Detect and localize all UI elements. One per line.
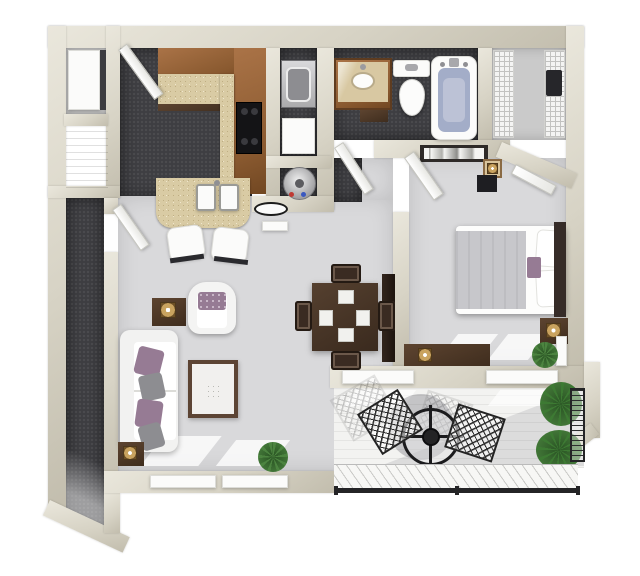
placemat [338, 290, 354, 304]
countertop-right [220, 74, 234, 192]
railing-post [334, 486, 338, 495]
bed-blanket [456, 231, 526, 309]
wall-plate [262, 221, 288, 231]
oval-wall-mirror [254, 202, 288, 216]
water-heater-cap [295, 179, 304, 188]
wall-hall-lower [104, 493, 120, 533]
dining-chair [295, 301, 312, 331]
cold-pipe-dot [301, 192, 306, 197]
wall-left [48, 26, 66, 512]
placemat [338, 328, 354, 342]
window [222, 475, 288, 488]
wall-entry-closet-right [106, 26, 120, 198]
dark-storage-box [477, 175, 497, 192]
armchair-pillow [198, 292, 226, 310]
range-burner [241, 108, 248, 115]
window [486, 370, 558, 384]
railing-post [576, 486, 580, 495]
hanging-clothes [546, 70, 562, 96]
sink-basin [219, 184, 239, 211]
range-burner [241, 138, 248, 145]
wall-right-bedroom [566, 26, 584, 370]
wall-living-bedroom [393, 212, 409, 366]
dresser-lamp [418, 348, 432, 362]
sofa-pillow-gray [138, 372, 167, 402]
dryer [282, 118, 315, 154]
toilet-button [405, 64, 418, 71]
range-burner [251, 138, 258, 145]
dining-chair [378, 301, 395, 331]
tub-handle [440, 62, 445, 67]
accent-table-lamp [487, 163, 498, 174]
vanity-sink [351, 72, 375, 90]
floorplan-render [0, 0, 640, 576]
placemat [319, 310, 333, 326]
rug-motif [206, 384, 220, 398]
tub-handle [463, 62, 468, 67]
wood-closet-door [66, 126, 108, 188]
dresser [404, 344, 490, 366]
bedroom-plant [532, 342, 558, 368]
side-table-lamp [160, 302, 176, 318]
window [150, 475, 216, 488]
balcony-railing-right [570, 388, 585, 462]
vanity-drawers [360, 110, 388, 122]
wall-living-bottom [104, 471, 334, 493]
purple-accent-pillow [527, 257, 541, 278]
dining-chair [331, 264, 361, 283]
washer-drum [286, 67, 311, 102]
wire-shelf-left [493, 50, 514, 138]
bedroom-wall-art-matte [424, 148, 484, 159]
bathtub-mat [443, 78, 465, 122]
vanity-faucet [360, 64, 366, 70]
living-plant [258, 442, 288, 472]
dining-chair [331, 351, 361, 370]
sink-basin [196, 184, 216, 211]
wall-hall-right [104, 252, 118, 493]
railing-post [455, 486, 459, 495]
umbrella-hub [422, 428, 440, 446]
side-table-lamp [123, 446, 137, 460]
wall-entry-closet-divider [64, 114, 108, 126]
hot-pipe-dot [289, 192, 294, 197]
entry-closet-shadow [100, 50, 106, 110]
wall-bath-closet-divider [478, 48, 492, 140]
headboard [554, 222, 566, 317]
range-burner [251, 108, 258, 115]
wall-utility-left [266, 48, 280, 210]
faucet [214, 180, 220, 186]
tub-faucet [449, 58, 459, 67]
entry-closet-appliance [68, 50, 100, 110]
range [236, 102, 262, 154]
placemat [356, 310, 370, 326]
wall-utility-right [317, 48, 334, 210]
